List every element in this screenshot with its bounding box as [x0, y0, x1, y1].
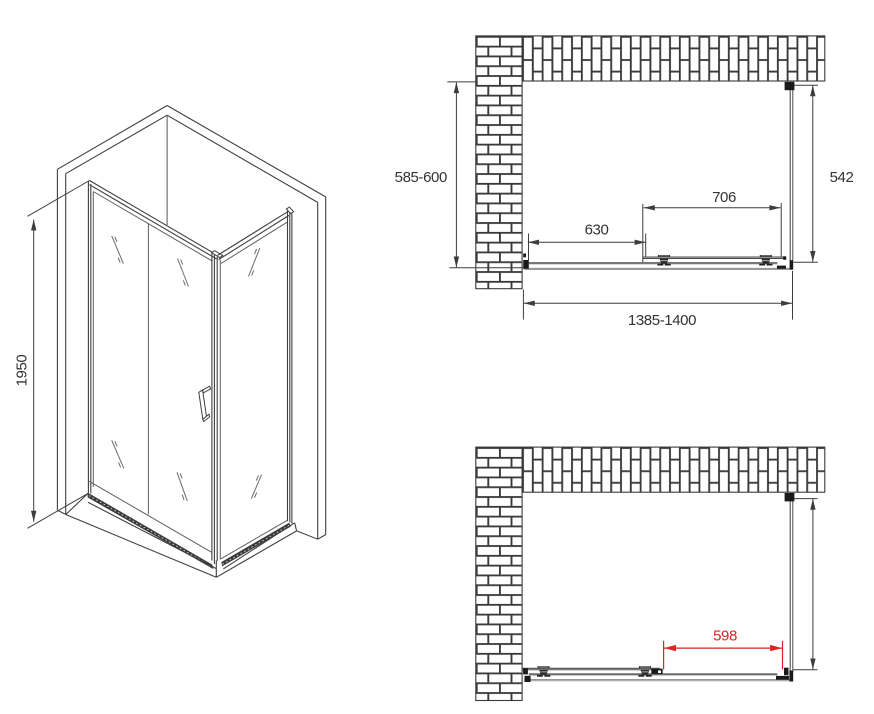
svg-text:706: 706	[712, 189, 736, 206]
svg-text:585-600: 585-600	[395, 169, 447, 186]
svg-text:1950: 1950	[13, 355, 30, 387]
svg-text:542: 542	[830, 169, 854, 186]
svg-text:598: 598	[713, 627, 737, 644]
svg-text:630: 630	[585, 221, 609, 238]
svg-text:1385-1400: 1385-1400	[628, 312, 696, 329]
